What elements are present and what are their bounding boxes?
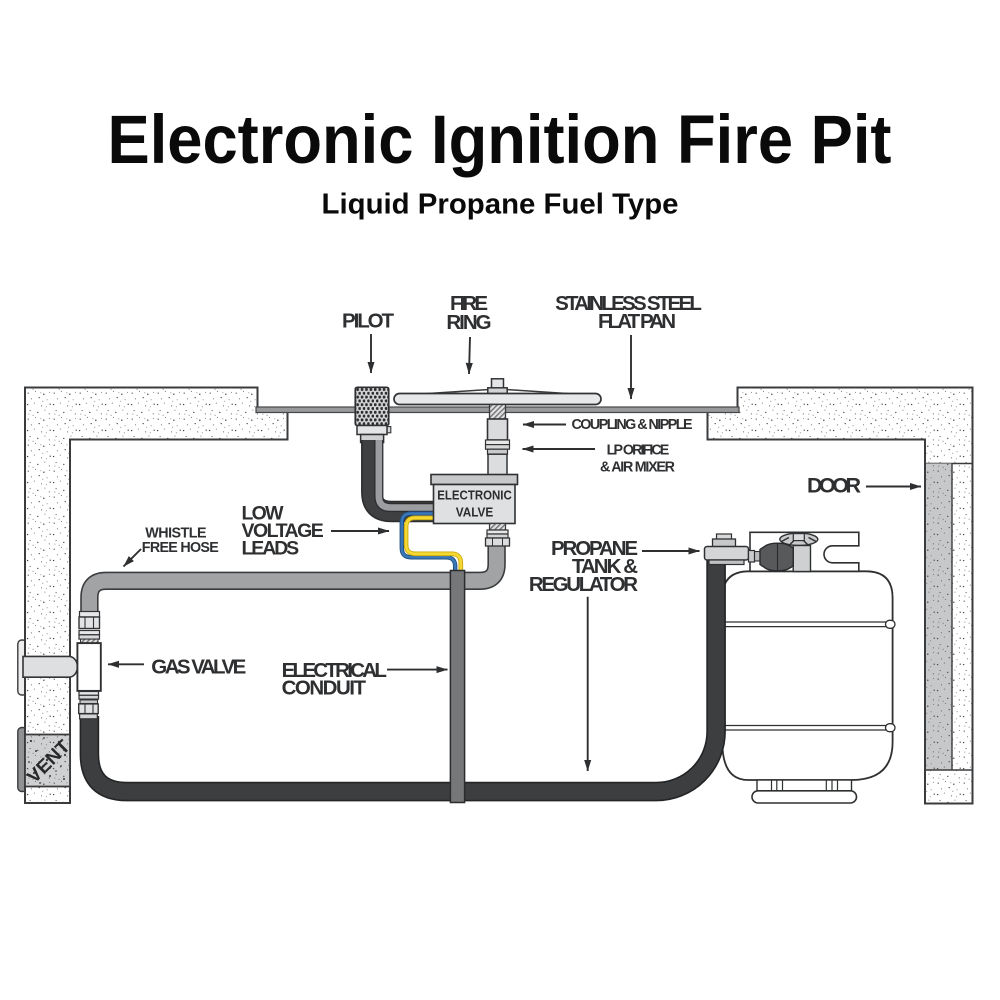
svg-text:& AIR MIXER: & AIR MIXER <box>600 460 676 476</box>
svg-text:CONDUIT: CONDUIT <box>282 676 367 699</box>
svg-text:PILOT: PILOT <box>342 310 394 333</box>
svg-text:ELECTRONIC: ELECTRONIC <box>437 488 512 503</box>
svg-text:REGULATOR: REGULATOR <box>529 573 638 596</box>
svg-text:LEADS: LEADS <box>242 538 300 560</box>
svg-text:WHISTLE: WHISTLE <box>145 525 206 541</box>
svg-text:VALVE: VALVE <box>456 505 494 520</box>
svg-text:GAS VALVE: GAS VALVE <box>151 655 246 678</box>
svg-text:LP ORIFICE: LP ORIFICE <box>607 443 670 459</box>
svg-text:RING: RING <box>446 311 491 334</box>
svg-text:COUPLING & NIPPLE: COUPLING & NIPPLE <box>572 417 693 433</box>
svg-text:FREE HOSE: FREE HOSE <box>142 540 219 556</box>
svg-text:FLAT PAN: FLAT PAN <box>598 310 676 333</box>
svg-text:Electronic Ignition Fire Pit: Electronic Ignition Fire Pit <box>108 101 892 178</box>
svg-text:Liquid Propane Fuel Type: Liquid Propane Fuel Type <box>322 188 679 220</box>
svg-text:DOOR: DOOR <box>807 473 861 497</box>
